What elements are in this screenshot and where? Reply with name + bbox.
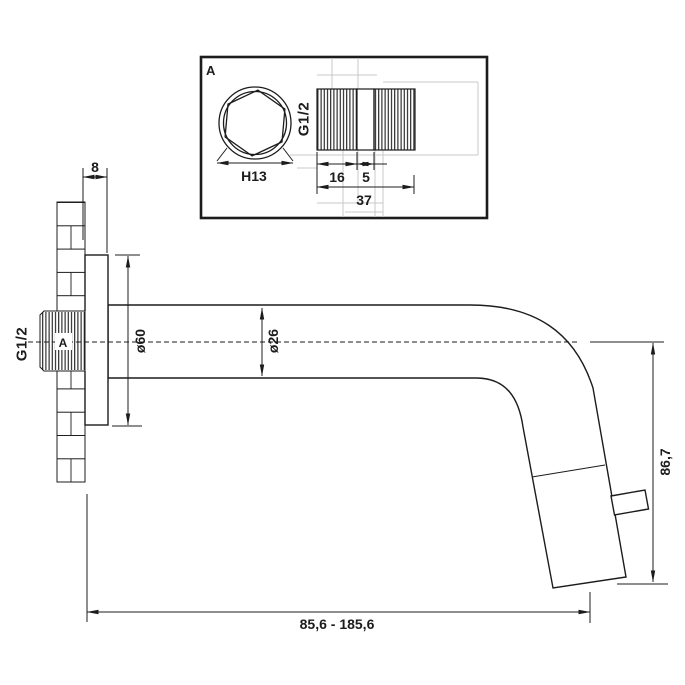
detail-marker: A (55, 333, 72, 350)
aerator-knob (611, 490, 649, 515)
detail-marker-label: A (59, 336, 68, 350)
detail-box: A H13 G1/2 16 (201, 57, 487, 218)
detail-box-label: A (206, 63, 216, 78)
dim-outlet-height-label: 86,7 (657, 448, 673, 475)
main-thread-size-label: G1/2 (14, 327, 31, 362)
escutcheon-flange (85, 255, 108, 425)
dim-flange-offset: 8 (83, 159, 107, 253)
dim-flange-diameter-label: ø60 (132, 329, 148, 353)
spout-body (108, 305, 649, 588)
nipple-side-view (317, 89, 415, 150)
faucet-dimension-drawing: A G1/2 8 ø60 ø26 86,7 85,6 - 185,6 (0, 0, 685, 685)
technical-drawing-page: A G1/2 8 ø60 ø26 86,7 85,6 - 185,6 (0, 0, 685, 685)
dim-spout-length: 85,6 - 185,6 (87, 494, 590, 632)
dim-total-length-label: 37 (356, 192, 372, 208)
dim-thread-length-label: 16 (329, 169, 345, 185)
nipple-thread-left (317, 89, 357, 150)
detail-thread-size-label: G1/2 (296, 102, 313, 137)
spout-outline (108, 305, 626, 588)
dim-flange-offset-label: 8 (91, 159, 99, 175)
nipple-shoulder (357, 89, 374, 150)
dim-spout-length-label: 85,6 - 185,6 (300, 616, 375, 632)
dim-hex-width-label: H13 (241, 168, 267, 184)
nipple-thread-right (374, 89, 415, 150)
dim-shoulder-length-label: 5 (362, 169, 370, 185)
dim-spout-diameter-label: ø26 (265, 329, 281, 353)
